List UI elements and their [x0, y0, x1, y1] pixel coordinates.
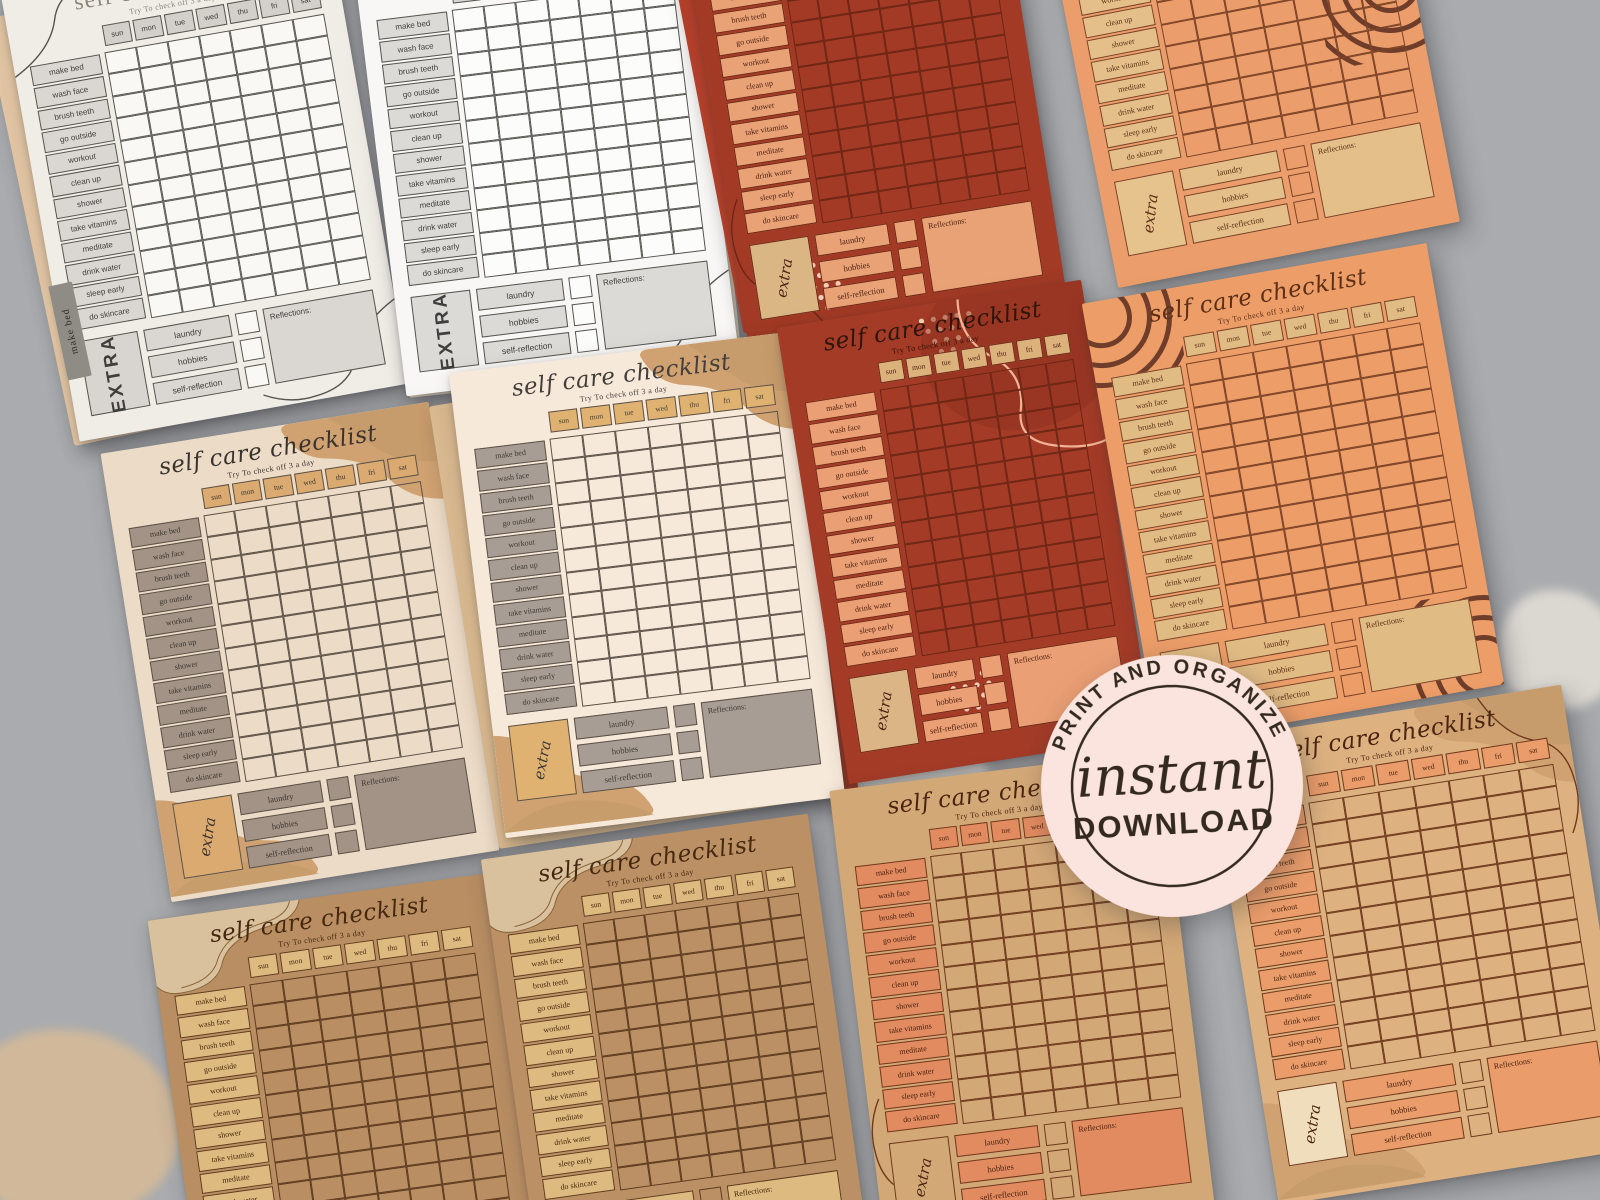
extra-item-cell: laundry	[954, 1125, 1040, 1157]
extra-label-box: EXTRA extra	[1277, 1081, 1348, 1165]
day-header-cell: sun	[580, 892, 611, 917]
check-cell	[1029, 612, 1060, 639]
day-header-cell: sat	[1383, 296, 1417, 322]
extra-label: extra	[530, 738, 555, 780]
check-cell	[179, 285, 214, 313]
check-cell	[147, 290, 182, 318]
check-cell	[304, 745, 339, 772]
extra-items: laundryhobbiesself-reflection	[914, 658, 985, 742]
check-cell	[1557, 1008, 1596, 1036]
day-header-cell: mon	[133, 15, 165, 41]
product-mockup-scene: self care checklist Try To check off 3 a…	[0, 0, 1600, 1200]
check-cell	[640, 232, 674, 258]
reflections-label: Reflections:	[1078, 1120, 1117, 1134]
day-header-cell: thu	[376, 935, 408, 960]
extra-items: laundryhobbiesself-reflection	[237, 780, 332, 868]
day-header-cell: wed	[1411, 754, 1446, 780]
day-header-cell: wed	[645, 396, 677, 420]
extra-label: EXTRA	[97, 332, 132, 414]
extra-label-box: EXTRA extra	[749, 235, 820, 319]
check-cell	[645, 672, 680, 698]
check-cell	[775, 656, 810, 682]
extra-checkboxes	[1043, 1121, 1074, 1199]
day-header-cell: sat	[743, 384, 775, 408]
check-cell	[1182, 129, 1219, 158]
extra-item-cell: self-reflection	[922, 711, 985, 742]
extra-check-cell	[235, 309, 260, 334]
day-header-cell: fri	[735, 871, 766, 896]
extra-item-cell: hobbies	[957, 1151, 1043, 1183]
extra-check-cell	[568, 274, 593, 299]
under-sheet-task-tab-label: make bed	[60, 307, 80, 355]
extra-label: extra	[1139, 192, 1162, 233]
check-cell	[1116, 1078, 1150, 1104]
day-header-cell: tue	[613, 400, 645, 424]
check-cell	[937, 177, 970, 204]
day-header-cell: sat	[1516, 737, 1551, 763]
check-cell	[710, 1150, 744, 1177]
day-header-cell: mon	[1341, 765, 1376, 791]
extra-item-cell: self-reflection	[580, 760, 676, 793]
check-cell	[1363, 577, 1400, 605]
checklist-card-brown-left: self care checklist Try To check off 3 a…	[148, 874, 549, 1200]
extra-label: extra	[910, 1156, 935, 1198]
day-header-cell: wed	[673, 879, 704, 904]
day-header-cell: sun	[101, 21, 133, 47]
habit-grid: sunmontuewedthufrisatmake bedwash facebr…	[171, 930, 513, 1200]
check-cell	[1001, 616, 1032, 643]
check-cell	[1452, 1025, 1491, 1053]
day-header-cell: tue	[642, 884, 673, 909]
extra-items: laundryhobbiesself-reflection	[954, 1125, 1047, 1200]
day-header-cell: mon	[580, 404, 612, 428]
reflections-box: Reflections:	[262, 289, 385, 383]
day-header-cell: tue	[932, 350, 960, 375]
check-cell	[878, 187, 911, 214]
check-cell	[397, 730, 432, 757]
extra-label: extra	[196, 815, 220, 857]
habit-grid: sunmontuewedthufrisatmake bedwash facebr…	[504, 870, 836, 1200]
habit-grid: sunmontuewedthufrisatmake bedwash facebr…	[1107, 300, 1467, 643]
check-cell	[1381, 90, 1418, 119]
day-header-cell: tue	[312, 944, 344, 969]
day-header-cell: fri	[1481, 743, 1516, 769]
extra-checkboxes	[979, 653, 1013, 732]
day-header-cell: fri	[711, 388, 743, 412]
day-header-cell: sun	[1183, 331, 1217, 357]
check-cell	[1522, 1013, 1561, 1041]
check-cell	[428, 725, 463, 752]
habit-grid: sunmontuewedthufrisatmake bedwash facebr…	[26, 0, 371, 331]
day-header-cell: sun	[928, 826, 959, 850]
day-header-cell: mon	[232, 479, 263, 504]
check-cell	[1147, 1074, 1181, 1100]
check-cell	[1054, 1086, 1088, 1112]
check-cell	[1282, 109, 1319, 138]
check-cell	[918, 629, 949, 656]
day-header-cell: sun	[1306, 771, 1341, 797]
extra-items: laundryhobbiesself-reflection	[574, 706, 677, 793]
check-cell	[366, 735, 401, 762]
extra-check-cell	[679, 756, 704, 781]
extra-items: laundryhobbiesself-reflection	[1179, 150, 1292, 244]
reflections-box: Reflections:	[921, 200, 1044, 293]
extra-checkboxes	[1459, 1058, 1493, 1137]
extra-label-box: EXTRA extra	[889, 1136, 958, 1200]
extra-items: laundryhobbiesself-reflection	[143, 314, 242, 404]
extra-check-cell	[1050, 1175, 1075, 1200]
reflections-label: Reflections:	[733, 1184, 773, 1198]
extra-check-cell	[1047, 1148, 1072, 1173]
extra-check-cell	[244, 363, 269, 388]
check-cell	[482, 251, 516, 277]
checklist-card-cream-pink: self care checklist Try To check off 3 a…	[449, 332, 845, 838]
extra-check-cell	[330, 802, 355, 827]
check-cell	[336, 257, 371, 285]
day-header-cell: mon	[279, 949, 311, 974]
extra-check-cell	[575, 328, 600, 353]
check-cell	[1229, 601, 1266, 629]
check-cell	[997, 168, 1030, 195]
check-cell	[545, 243, 579, 269]
extra-check-cell	[979, 653, 1004, 678]
extra-check-cell	[1331, 618, 1356, 643]
reflections-label: Reflections:	[927, 215, 967, 230]
extra-items: laundryhobbiesself-reflection	[476, 278, 572, 364]
extra-label-box: EXTRA extra	[172, 794, 243, 878]
check-cell	[1396, 571, 1433, 599]
check-cell	[677, 668, 712, 694]
day-header-cell: sun	[877, 359, 905, 384]
check-cell	[335, 740, 370, 767]
check-cell	[474, 1175, 509, 1200]
extra-check-cell	[987, 707, 1012, 732]
extra-check-cell	[676, 729, 701, 754]
day-header-cell: sun	[201, 484, 232, 509]
check-cell	[1085, 1082, 1119, 1108]
day-header-cell: thu	[1316, 308, 1350, 334]
check-cell	[1296, 589, 1333, 617]
day-header-cell: mon	[959, 822, 990, 846]
check-cell	[1382, 1036, 1421, 1064]
checklist-card-white: self care checklist Try To check off 3 a…	[351, 0, 739, 396]
extra-check-cell	[897, 245, 922, 270]
day-header-cell: wed	[195, 4, 227, 30]
check-cell	[1430, 566, 1467, 594]
check-cell	[310, 1175, 345, 1200]
reflections-box: Reflections:	[596, 260, 716, 349]
extra-item-cell: self-reflection	[823, 276, 900, 309]
habit-grid: sunmontuewedthufrisatmake bedwash facebr…	[373, 0, 705, 287]
extra-checkboxes	[568, 274, 599, 352]
check-cell	[908, 182, 941, 209]
extra-check-cell	[1283, 144, 1309, 170]
check-cell	[273, 750, 308, 777]
day-header-cell: tue	[1249, 320, 1283, 346]
check-cell	[278, 1180, 313, 1200]
extra-check-cell	[1459, 1058, 1484, 1083]
day-header-cell: fri	[258, 0, 290, 19]
day-header-cell: tue	[991, 818, 1022, 842]
check-cell	[802, 1137, 836, 1164]
extra-check-cell	[673, 703, 698, 728]
background-sheet-blob	[0, 1030, 180, 1200]
reflections-box: Reflections:	[1310, 122, 1434, 218]
extra-label: extra	[772, 257, 796, 299]
check-cell	[974, 620, 1005, 647]
extra-checkboxes	[326, 776, 360, 855]
check-cell	[710, 664, 745, 690]
check-cell	[960, 1097, 994, 1123]
day-header-cell: fri	[1015, 337, 1043, 362]
check-cell	[1329, 583, 1366, 611]
extra-check-cell	[1467, 1112, 1492, 1137]
reflections-box: Reflections:	[354, 757, 477, 850]
check-cell	[612, 676, 647, 702]
check-cell	[617, 1163, 651, 1190]
day-header-cell: thu	[227, 0, 259, 24]
check-cell	[648, 1159, 682, 1186]
day-header-cell: sat	[766, 866, 797, 891]
reflections-label: Reflections:	[1365, 614, 1405, 630]
reflections-label: Reflections:	[707, 701, 746, 715]
day-header-cell: sun	[450, 0, 481, 4]
check-cell	[967, 172, 1000, 199]
extra-check-cell	[1335, 645, 1360, 670]
check-cell	[242, 754, 277, 781]
check-cell	[1084, 603, 1115, 630]
reflections-label: Reflections:	[269, 305, 312, 321]
check-cell	[771, 1142, 805, 1169]
day-header-cell: sat	[441, 926, 473, 951]
habit-grid: sunmontuewedthufrisatmake bedwash facebr…	[702, 0, 1030, 235]
extra-check-cell	[571, 301, 596, 326]
reflections-box: Reflections:	[1358, 598, 1481, 692]
checklist-card-brown-mid: self care checklist Try To check off 3 a…	[481, 814, 871, 1200]
extra-check-cell	[1340, 671, 1365, 696]
check-cell	[991, 1094, 1025, 1120]
reflections-box: Reflections:	[727, 1170, 848, 1200]
extra-check-cell	[1043, 1121, 1068, 1146]
day-header-cell: wed	[294, 469, 325, 494]
check-cell	[1057, 607, 1088, 634]
check-cell	[672, 228, 706, 254]
extra-items: laundryhobbiesself-reflection	[1342, 1063, 1465, 1156]
day-header-cell: thu	[1446, 749, 1481, 775]
check-cell	[210, 279, 245, 307]
extra-item-cell: laundry	[612, 1190, 696, 1200]
reflections-label: Reflections:	[1317, 140, 1357, 156]
check-cell	[1248, 116, 1285, 145]
check-cell	[608, 236, 642, 262]
extra-check-cell	[699, 1186, 724, 1200]
day-header-cell: tue	[1376, 760, 1411, 786]
extra-check-cell	[1288, 171, 1314, 197]
check-cell	[740, 1146, 774, 1173]
check-cell	[273, 268, 308, 296]
extra-label-box: EXTRA extra	[508, 718, 577, 801]
extra-checkboxes	[673, 703, 704, 781]
day-header-cell: wed	[1283, 314, 1317, 340]
day-header-cell: sat	[1043, 333, 1071, 358]
check-cell	[1215, 122, 1252, 151]
extra-items: laundryhobbiesself-reflection	[814, 223, 899, 310]
day-header-cell: tue	[164, 9, 196, 35]
check-cell	[819, 196, 852, 223]
extra-check-cell	[902, 272, 927, 297]
day-header-cell: sun	[247, 953, 279, 978]
check-cell	[679, 1155, 713, 1182]
day-header-cell: fri	[1350, 302, 1384, 328]
day-header-cell: wed	[344, 940, 376, 965]
reflections-label: Reflections:	[603, 273, 646, 287]
check-cell	[241, 274, 276, 302]
reflections-label: Reflections:	[361, 773, 401, 788]
check-cell	[304, 262, 339, 290]
check-cell	[1347, 1041, 1386, 1069]
reflections-box: Reflections:	[1486, 1040, 1600, 1133]
habit-grid: sunmontuewedthufrisatmake bedwash facebr…	[801, 336, 1115, 667]
instant-download-badge: PRINT AND ORGANIZE instant DOWNLOAD	[1030, 644, 1314, 928]
day-header-cell: mon	[611, 888, 642, 913]
extra-check-cell	[1463, 1085, 1488, 1110]
badge-script-label: instant	[1075, 737, 1268, 810]
day-header-cell: sat	[387, 455, 418, 480]
check-cell	[577, 239, 611, 265]
check-cell	[946, 625, 977, 652]
extra-check-cell	[983, 680, 1008, 705]
extra-label: EXTRA	[429, 290, 461, 371]
day-header-cell: thu	[678, 392, 710, 416]
extra-label-box: EXTRA extra	[1114, 170, 1187, 256]
extra-label-box: EXTRA extra	[410, 289, 479, 372]
extra-check-cell	[1293, 197, 1319, 223]
reflections-box: Reflections:	[1071, 1107, 1191, 1196]
extra-item-cell: laundry	[914, 658, 977, 689]
check-cell	[1023, 1090, 1057, 1116]
extra-check-cell	[893, 218, 918, 243]
extra-label: extra	[872, 689, 896, 731]
reflections-box: Reflections:	[701, 688, 821, 777]
reflections-label: Reflections:	[1493, 1055, 1533, 1070]
checklist-card-peach-top: self care checklist Try To check off 3 a…	[1030, 0, 1460, 288]
day-header-cell: thu	[988, 341, 1016, 366]
day-header-cell: fri	[356, 459, 387, 484]
extra-check-cell	[326, 776, 351, 801]
day-header-cell: sat	[289, 0, 321, 13]
extra-item-cell: self-reflection	[482, 331, 571, 363]
day-header-cell: tue	[263, 474, 294, 499]
extra-check-cell	[239, 336, 264, 361]
check-cell	[1417, 1030, 1456, 1058]
day-header-cell: mon	[1216, 326, 1250, 352]
check-cell	[1348, 96, 1385, 125]
extra-check-cell	[335, 829, 360, 854]
check-cell	[442, 1179, 477, 1200]
check-cell	[513, 247, 547, 273]
check-cell	[743, 660, 778, 686]
day-header-cell: wed	[960, 346, 988, 371]
check-cell	[1262, 595, 1299, 623]
extra-items: laundryhobbiesself-reflection	[612, 1190, 704, 1200]
check-cell	[1487, 1019, 1526, 1047]
day-header-cell: mon	[905, 354, 933, 379]
habit-grid: sunmontuewedthufrisatmake bedwash facebr…	[471, 388, 810, 716]
day-header-cell: fri	[408, 931, 440, 956]
day-header-cell: sun	[548, 408, 580, 432]
day-header-cell: thu	[325, 464, 356, 489]
extra-item-cell: hobbies	[918, 684, 981, 715]
day-header-cell: thu	[704, 875, 735, 900]
check-cell	[1315, 103, 1352, 132]
extra-label-box: EXTRA extra	[848, 668, 919, 752]
check-cell	[848, 191, 881, 218]
extra-checkboxes	[893, 218, 927, 297]
check-cell	[580, 680, 615, 706]
habit-grid: sunmontuewedthufrisatmake bedwash facebr…	[125, 458, 463, 793]
extra-label: extra	[1301, 1103, 1325, 1145]
